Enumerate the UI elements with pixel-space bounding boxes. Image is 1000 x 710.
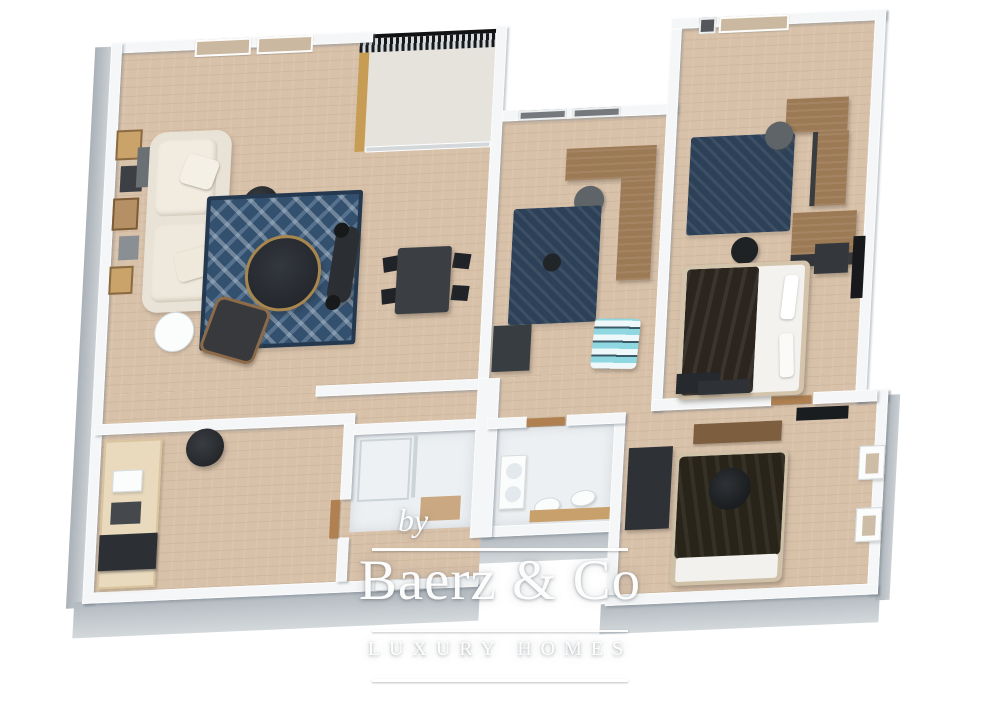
window-bedroom2-1 [858,445,886,480]
gallery-wall-frame [118,235,139,260]
watermark-rule-bottom [372,679,628,682]
window-office-2 [572,106,621,118]
window-living-1 [195,38,252,57]
dining-table [395,246,452,315]
window-bedroom2-2 [855,507,883,542]
watermark-brand: Baerz & Co [335,548,665,613]
bedroom1-desk [785,97,849,134]
window-office-1 [518,109,567,121]
office-door-mat [491,324,531,372]
page: { "brand_watermark": { "prefix": "by", "… [0,0,1000,710]
window-bedroom1-dark-pane [699,17,717,34]
foot-blanket [675,554,778,583]
striped-pouf [590,318,641,369]
office-desk-return [616,177,655,281]
window-living-2 [257,35,314,54]
dining-chair [452,253,472,270]
watermark-tagline: LUXURY HOMES [335,638,665,661]
bedroom1-desk-return [809,130,849,206]
basin [506,463,523,480]
kitchen-hob [110,501,141,524]
window-bedroom1 [719,14,790,33]
kitchen-sink [112,469,143,492]
bedroom2-wall-panel [693,420,782,444]
bedroom2-bed [670,449,789,586]
bedroom2-tv [796,406,849,421]
watermark-rule-middle [372,630,628,632]
floor-plan-render [73,8,916,635]
shower-tray [357,438,412,502]
office-desk [565,145,657,181]
door-bathroom-main [526,417,564,427]
bedroom2-dresser [625,446,673,530]
watermark-prefix: by [398,502,428,539]
pillow [779,333,794,378]
gallery-wall-frame [108,266,133,295]
bedroom1-nightstand [814,242,850,274]
kitchen-oven [98,533,158,572]
vanity-counter [498,455,527,510]
basin [504,486,521,503]
wall [486,417,527,430]
dining-chair [450,285,469,301]
hallway-mat [698,379,751,395]
gallery-wall-frame [112,197,140,230]
